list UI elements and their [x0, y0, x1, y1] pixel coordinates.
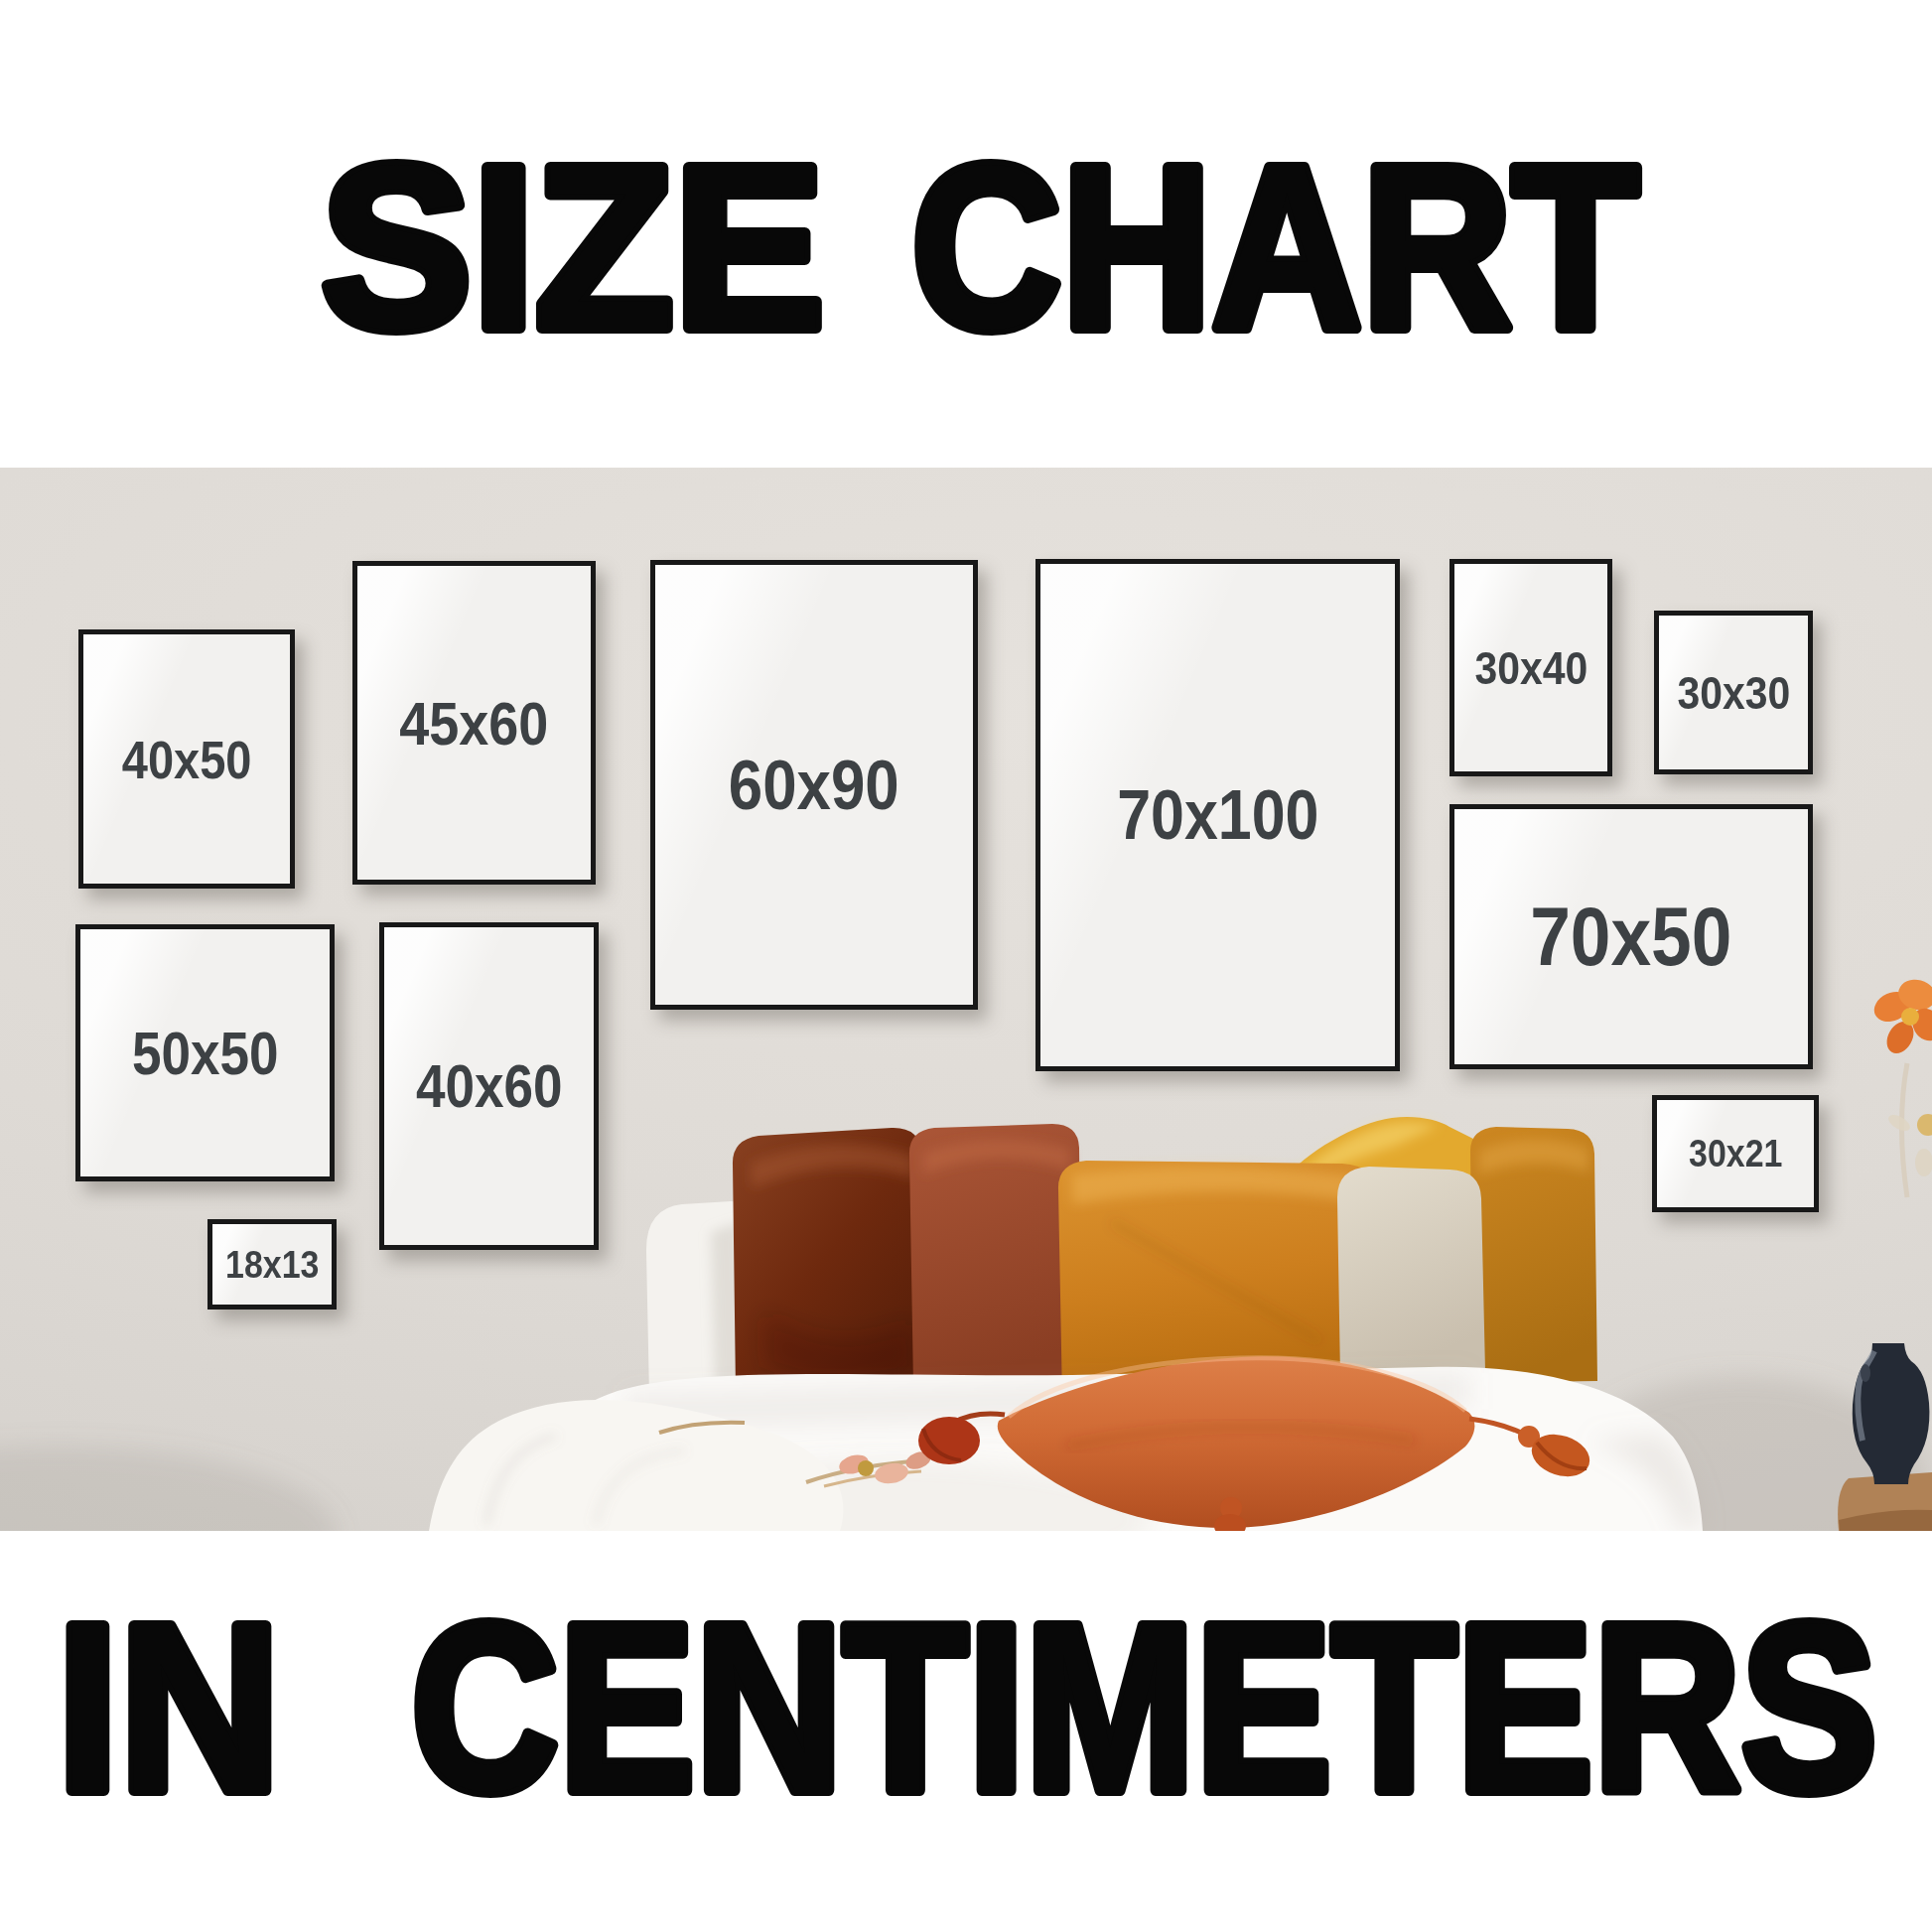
svg-text:SIZE: SIZE: [321, 117, 825, 377]
svg-text:CHART: CHART: [911, 117, 1639, 377]
svg-text:CENTIMETERS: CENTIMETERS: [411, 1575, 1877, 1841]
svg-text:IN: IN: [57, 1575, 281, 1841]
